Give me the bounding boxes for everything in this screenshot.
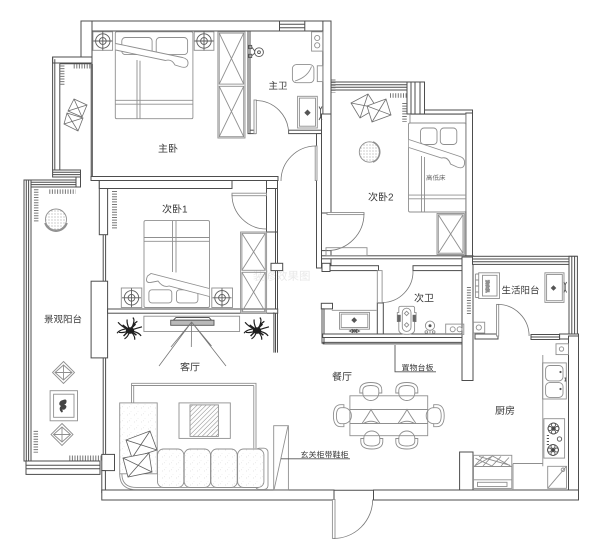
svg-text:客厅: 客厅: [180, 362, 200, 374]
svg-text:景观阳台: 景观阳台: [44, 314, 82, 326]
svg-text:厨房: 厨房: [495, 405, 515, 417]
svg-text:生活阳台: 生活阳台: [502, 285, 540, 297]
svg-text:次卧1: 次卧1: [162, 204, 188, 216]
svg-text:次卧2: 次卧2: [368, 192, 394, 204]
svg-text:次卫: 次卫: [414, 293, 434, 305]
svg-text:置物台板: 置物台板: [402, 364, 434, 373]
svg-text:玄关柜带鞋柜: 玄关柜带鞋柜: [301, 451, 349, 460]
svg-text:高低床: 高低床: [426, 174, 446, 182]
svg-text:主卧: 主卧: [158, 143, 178, 155]
svg-text:洗衣机: 洗衣机: [485, 280, 490, 293]
svg-text:餐厅: 餐厅: [332, 371, 352, 383]
svg-text:主卫: 主卫: [269, 81, 289, 92]
